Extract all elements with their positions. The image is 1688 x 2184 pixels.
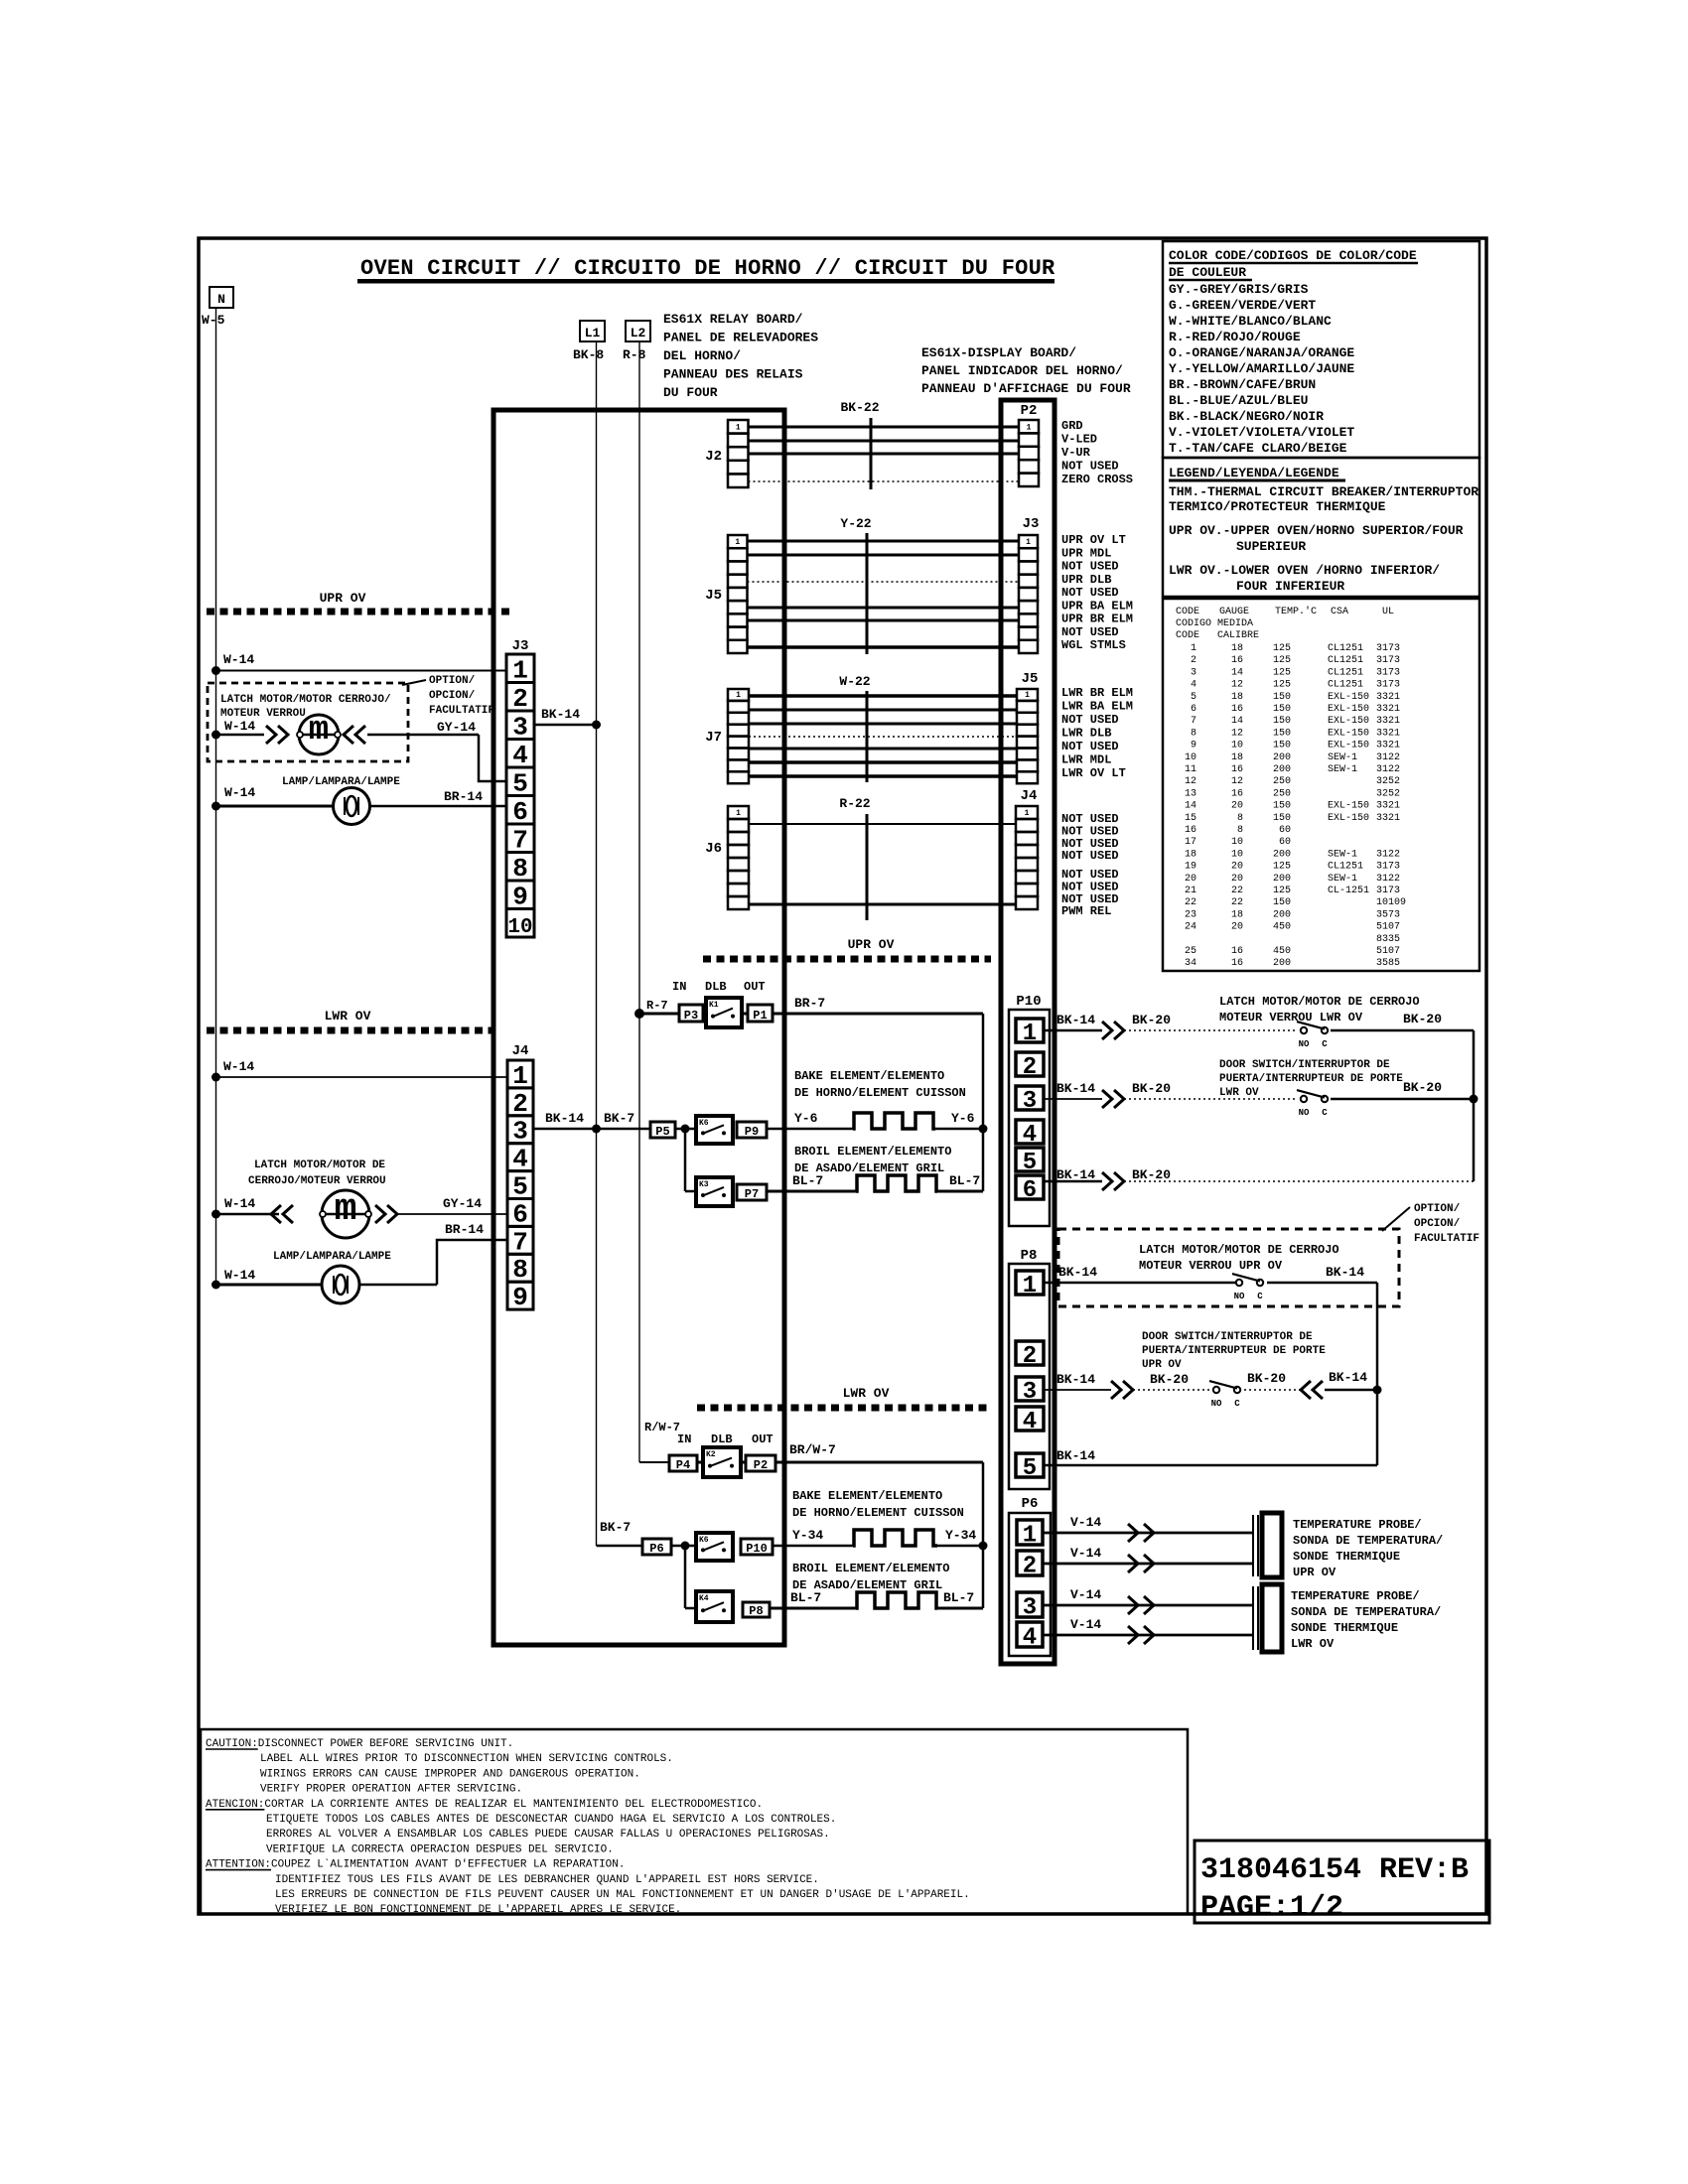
svg-text:UPR BA ELM: UPR BA ELM — [1061, 599, 1133, 613]
svg-text:12: 12 — [1231, 776, 1243, 787]
svg-text:UPR BR ELM: UPR BR ELM — [1061, 613, 1133, 626]
svg-text:P5: P5 — [655, 1125, 669, 1139]
svg-text:250: 250 — [1273, 776, 1291, 787]
svg-text:1: 1 — [1026, 538, 1031, 547]
svg-text:10: 10 — [1185, 752, 1196, 763]
svg-text:V-UR: V-UR — [1061, 446, 1091, 460]
svg-text:NO: NO — [1211, 1399, 1222, 1409]
svg-text:BK-14: BK-14 — [541, 707, 580, 722]
svg-text:ATTENTION:COUPEZ L`ALIMENTATIO: ATTENTION:COUPEZ L`ALIMENTATION AVANT D'… — [206, 1858, 625, 1871]
svg-text:P7: P7 — [745, 1187, 759, 1201]
svg-text:Y-34: Y-34 — [945, 1528, 976, 1543]
svg-text:ERRORES AL VOLVER A ENSAMBLAR: ERRORES AL VOLVER A ENSAMBLAR LOS CABLES… — [266, 1829, 830, 1841]
svg-text:GY.-GREY/GRIS/GRIS: GY.-GREY/GRIS/GRIS — [1169, 282, 1309, 297]
svg-text:UPR MDL: UPR MDL — [1061, 546, 1111, 560]
svg-text:21: 21 — [1185, 886, 1196, 896]
svg-text:CSA: CSA — [1331, 607, 1348, 617]
svg-text:UL: UL — [1382, 607, 1394, 617]
svg-text:FACULTATIF: FACULTATIF — [1414, 1233, 1479, 1245]
svg-text:BK.-BLACK/NEGRO/NOIR: BK.-BLACK/NEGRO/NOIR — [1169, 409, 1324, 424]
svg-text:3585: 3585 — [1376, 958, 1400, 969]
svg-text:BL.-BLUE/AZUL/BLEU: BL.-BLUE/AZUL/BLEU — [1169, 393, 1308, 408]
svg-text:BK-20: BK-20 — [1132, 1081, 1171, 1096]
svg-text:IN: IN — [672, 980, 686, 994]
svg-text:OUT: OUT — [744, 980, 766, 994]
svg-text:200: 200 — [1273, 958, 1291, 969]
svg-text:DE HORNO/ELEMENT CUISSON: DE HORNO/ELEMENT CUISSON — [794, 1086, 966, 1100]
svg-text:11: 11 — [1185, 764, 1196, 775]
svg-text:LWR BA ELM: LWR BA ELM — [1061, 700, 1133, 714]
svg-text:LABEL ALL WIRES PRIOR TO DISCO: LABEL ALL WIRES PRIOR TO DISCONNECTION W… — [260, 1753, 673, 1765]
svg-text:SUPERIEUR: SUPERIEUR — [1236, 539, 1306, 554]
svg-text:LAMP/LAMPARA/LAMPE: LAMP/LAMPARA/LAMPE — [282, 776, 400, 788]
svg-text:3321: 3321 — [1376, 813, 1400, 824]
svg-text:UPR OV: UPR OV — [1293, 1566, 1336, 1579]
svg-text:4: 4 — [1023, 1625, 1037, 1652]
svg-text:ES61X RELAY BOARD/: ES61X RELAY BOARD/ — [663, 312, 803, 327]
svg-text:V-14: V-14 — [1070, 1546, 1101, 1561]
svg-text:18: 18 — [1231, 752, 1243, 763]
svg-text:C: C — [1234, 1399, 1240, 1409]
svg-text:TERMICO/PROTECTEUR THERMIQUE: TERMICO/PROTECTEUR THERMIQUE — [1169, 499, 1386, 514]
svg-text:EXL-150: EXL-150 — [1328, 728, 1369, 739]
svg-text:EXL-150: EXL-150 — [1328, 741, 1369, 751]
svg-text:BR.-BROWN/CAFE/BRUN: BR.-BROWN/CAFE/BRUN — [1169, 377, 1316, 392]
svg-text:3122: 3122 — [1376, 874, 1400, 885]
svg-text:CODIGO MEDIDA: CODIGO MEDIDA — [1176, 618, 1253, 629]
svg-text:14: 14 — [1231, 667, 1243, 678]
svg-text:SEW-1: SEW-1 — [1328, 752, 1357, 763]
svg-text:P4: P4 — [676, 1458, 690, 1472]
svg-text:125: 125 — [1273, 886, 1291, 896]
svg-text:BK-20: BK-20 — [1150, 1372, 1189, 1387]
svg-text:CL1251: CL1251 — [1328, 680, 1363, 691]
svg-text:P3: P3 — [684, 1009, 698, 1023]
svg-text:BK-14: BK-14 — [1056, 1081, 1095, 1096]
svg-text:BROIL ELEMENT/ELEMENTO: BROIL ELEMENT/ELEMENTO — [794, 1145, 951, 1159]
svg-text:m: m — [309, 712, 329, 750]
svg-text:18: 18 — [1231, 643, 1243, 654]
svg-text:200: 200 — [1273, 849, 1291, 860]
svg-text:16: 16 — [1231, 946, 1243, 957]
svg-text:BK-14: BK-14 — [1326, 1265, 1364, 1280]
svg-text:LWR OV: LWR OV — [1291, 1637, 1335, 1651]
svg-text:NOT USED: NOT USED — [1061, 560, 1119, 574]
svg-text:IN: IN — [677, 1433, 691, 1446]
svg-text:ATENCION:CORTAR LA CORRIENTE A: ATENCION:CORTAR LA CORRIENTE ANTES DE RE… — [206, 1799, 763, 1811]
svg-text:BL-7: BL-7 — [792, 1173, 823, 1188]
svg-text:PANNEAU DES RELAIS: PANNEAU DES RELAIS — [663, 367, 803, 382]
svg-text:P6: P6 — [1022, 1496, 1039, 1512]
svg-text:150: 150 — [1273, 728, 1291, 739]
svg-text:TEMPERATURE PROBE/: TEMPERATURE PROBE/ — [1291, 1589, 1420, 1603]
svg-text:3321: 3321 — [1376, 716, 1400, 727]
svg-text:J3: J3 — [512, 638, 529, 654]
svg-text:BR-14: BR-14 — [444, 789, 483, 804]
svg-text:PAGE:1/2: PAGE:1/2 — [1200, 1891, 1343, 1925]
svg-text:25: 25 — [1185, 946, 1196, 957]
svg-text:BAKE ELEMENT/ELEMENTO: BAKE ELEMENT/ELEMENTO — [792, 1489, 942, 1503]
svg-text:CODE: CODE — [1176, 607, 1199, 617]
svg-text:BK-20: BK-20 — [1247, 1371, 1286, 1386]
svg-text:13: 13 — [1185, 788, 1196, 799]
svg-text:EXL-150: EXL-150 — [1328, 692, 1369, 703]
svg-text:OPTION/: OPTION/ — [429, 675, 476, 687]
svg-text:P8: P8 — [1021, 1248, 1038, 1264]
svg-text:318046154 REV:B: 318046154 REV:B — [1200, 1853, 1469, 1887]
svg-text:125: 125 — [1273, 667, 1291, 678]
svg-text:BK-22: BK-22 — [840, 400, 879, 415]
svg-text:J7: J7 — [705, 730, 722, 746]
svg-text:60: 60 — [1279, 825, 1291, 836]
svg-text:3573: 3573 — [1376, 909, 1400, 920]
svg-text:BK-14: BK-14 — [1056, 1448, 1095, 1463]
svg-text:NOT USED: NOT USED — [1061, 586, 1119, 600]
svg-text:Y.-YELLOW/AMARILLO/JAUNE: Y.-YELLOW/AMARILLO/JAUNE — [1169, 361, 1354, 376]
svg-text:P2: P2 — [754, 1458, 768, 1472]
svg-text:450: 450 — [1273, 922, 1291, 933]
svg-text:20: 20 — [1231, 874, 1243, 885]
svg-text:5: 5 — [1023, 1150, 1037, 1176]
svg-text:125: 125 — [1273, 862, 1291, 873]
svg-text:W-14: W-14 — [223, 652, 254, 667]
svg-text:125: 125 — [1273, 643, 1291, 654]
svg-text:14: 14 — [1185, 801, 1196, 812]
svg-text:LWR OV LT: LWR OV LT — [1061, 766, 1126, 780]
svg-text:150: 150 — [1273, 801, 1291, 812]
svg-text:WIRINGS ERRORS CAN CAUSE IMPRO: WIRINGS ERRORS CAN CAUSE IMPROPER AND DA… — [260, 1768, 640, 1780]
svg-text:2: 2 — [1023, 1343, 1037, 1370]
svg-text:10: 10 — [508, 916, 533, 939]
svg-text:10: 10 — [1231, 849, 1243, 860]
svg-text:OPCION/: OPCION/ — [1414, 1218, 1461, 1230]
svg-text:3: 3 — [1023, 1379, 1037, 1406]
svg-text:FACULTATIF: FACULTATIF — [429, 705, 494, 717]
svg-text:3: 3 — [1023, 1088, 1037, 1115]
svg-text:GAUGE: GAUGE — [1219, 607, 1249, 617]
svg-text:DLB: DLB — [705, 980, 727, 994]
svg-text:1: 1 — [1027, 423, 1032, 432]
svg-text:BR-7: BR-7 — [794, 996, 825, 1011]
svg-text:34: 34 — [1185, 958, 1196, 969]
svg-text:THM.-THERMAL CIRCUIT BREAKER/I: THM.-THERMAL CIRCUIT BREAKER/INTERRUPTOR — [1169, 484, 1478, 499]
svg-text:L1: L1 — [585, 326, 601, 341]
svg-text:LATCH MOTOR/MOTOR DE: LATCH MOTOR/MOTOR DE — [254, 1160, 385, 1171]
svg-text:R.-RED/ROJO/ROUGE: R.-RED/ROJO/ROUGE — [1169, 330, 1301, 344]
svg-text:EXL-150: EXL-150 — [1328, 704, 1369, 715]
svg-text:16: 16 — [1185, 825, 1196, 836]
svg-text:1: 1 — [1023, 1273, 1037, 1299]
svg-text:4: 4 — [1023, 1122, 1037, 1149]
svg-text:5: 5 — [1191, 692, 1196, 703]
svg-text:450: 450 — [1273, 946, 1291, 957]
svg-text:PANNEAU D'AFFICHAGE DU FOUR: PANNEAU D'AFFICHAGE DU FOUR — [921, 381, 1131, 396]
svg-text:CL-1251: CL-1251 — [1328, 886, 1369, 896]
svg-text:SEW-1: SEW-1 — [1328, 849, 1357, 860]
svg-text:1: 1 — [1025, 691, 1030, 700]
svg-text:P10: P10 — [1016, 994, 1041, 1010]
svg-text:150: 150 — [1273, 716, 1291, 727]
svg-text:UPR OV.-UPPER OVEN/HORNO SUPER: UPR OV.-UPPER OVEN/HORNO SUPERIOR/FOUR — [1169, 523, 1464, 538]
svg-text:J4: J4 — [1021, 788, 1038, 804]
svg-text:J4: J4 — [512, 1043, 529, 1059]
svg-text:EXL-150: EXL-150 — [1328, 801, 1369, 812]
svg-text:BL-7: BL-7 — [790, 1590, 821, 1605]
svg-text:22: 22 — [1185, 897, 1196, 908]
svg-text:16: 16 — [1231, 655, 1243, 666]
svg-text:3321: 3321 — [1376, 728, 1400, 739]
svg-text:MOTEUR VERROU LWR OV: MOTEUR VERROU LWR OV — [1219, 1011, 1363, 1024]
svg-text:NO: NO — [1299, 1039, 1310, 1049]
svg-text:GY-14: GY-14 — [443, 1196, 482, 1211]
svg-text:VERIFY PROPER OPERATION AFTER: VERIFY PROPER OPERATION AFTER SERVICING. — [260, 1784, 522, 1796]
svg-text:2: 2 — [1191, 655, 1196, 666]
svg-text:16: 16 — [1231, 788, 1243, 799]
svg-text:3: 3 — [1023, 1595, 1037, 1622]
svg-text:17: 17 — [1185, 837, 1196, 848]
svg-text:4: 4 — [1191, 680, 1196, 691]
svg-text:BROIL ELEMENT/ELEMENTO: BROIL ELEMENT/ELEMENTO — [792, 1562, 949, 1575]
svg-text:NOT USED: NOT USED — [1061, 625, 1119, 639]
svg-text:150: 150 — [1273, 692, 1291, 703]
svg-text:GRD: GRD — [1061, 419, 1083, 433]
svg-text:LWR DLB: LWR DLB — [1061, 727, 1111, 741]
svg-text:DE HORNO/ELEMENT CUISSON: DE HORNO/ELEMENT CUISSON — [792, 1506, 964, 1520]
svg-text:3252: 3252 — [1376, 776, 1400, 787]
svg-text:K4: K4 — [699, 1594, 709, 1603]
svg-text:20: 20 — [1231, 862, 1243, 873]
svg-text:SONDA DE TEMPERATURA/: SONDA DE TEMPERATURA/ — [1291, 1605, 1441, 1619]
svg-text:W-14: W-14 — [224, 1268, 255, 1283]
svg-text:20: 20 — [1185, 874, 1196, 885]
svg-text:CL1251: CL1251 — [1328, 862, 1363, 873]
svg-text:R-8: R-8 — [623, 347, 646, 362]
svg-text:IDENTIFIEZ TOUS LES FILS AVANT: IDENTIFIEZ TOUS LES FILS AVANT DE LES DE… — [275, 1874, 819, 1886]
svg-text:NOT USED: NOT USED — [1061, 460, 1119, 474]
svg-text:LWR OV: LWR OV — [1219, 1087, 1259, 1099]
svg-text:SONDE THERMIQUE: SONDE THERMIQUE — [1291, 1621, 1398, 1635]
svg-text:LWR BR ELM: LWR BR ELM — [1061, 686, 1133, 700]
svg-text:UPR OV: UPR OV — [320, 591, 366, 606]
svg-text:BK-14: BK-14 — [1329, 1370, 1367, 1385]
svg-text:m: m — [335, 1188, 357, 1231]
svg-text:10109: 10109 — [1376, 897, 1406, 908]
svg-text:6: 6 — [1191, 704, 1196, 715]
svg-text:5107: 5107 — [1376, 946, 1400, 957]
svg-text:VERIFIQUE LA CORRECTA OPERACIO: VERIFIQUE LA CORRECTA OPERACION DESPUES … — [266, 1843, 614, 1855]
svg-text:14: 14 — [1231, 716, 1243, 727]
svg-text:20: 20 — [1231, 801, 1243, 812]
svg-text:150: 150 — [1273, 813, 1291, 824]
svg-text:250: 250 — [1273, 788, 1291, 799]
svg-text:8335: 8335 — [1376, 934, 1400, 945]
svg-text:BK-14: BK-14 — [1056, 1372, 1095, 1387]
svg-text:BK-20: BK-20 — [1132, 1013, 1171, 1027]
svg-text:PWM REL: PWM REL — [1061, 904, 1111, 918]
svg-text:BK-7: BK-7 — [604, 1111, 634, 1126]
svg-text:R-7: R-7 — [646, 999, 668, 1013]
svg-text:DLB: DLB — [711, 1433, 733, 1446]
svg-text:DU FOUR: DU FOUR — [663, 385, 718, 400]
svg-text:12: 12 — [1231, 728, 1243, 739]
svg-text:BAKE ELEMENT/ELEMENTO: BAKE ELEMENT/ELEMENTO — [794, 1069, 944, 1083]
svg-text:3321: 3321 — [1376, 704, 1400, 715]
svg-text:Y-22: Y-22 — [840, 516, 871, 531]
svg-text:W-14: W-14 — [223, 1059, 254, 1074]
svg-text:TEMP.'C: TEMP.'C — [1275, 606, 1317, 617]
svg-text:K6: K6 — [699, 1536, 709, 1545]
svg-text:3173: 3173 — [1376, 680, 1400, 691]
svg-text:LATCH MOTOR/MOTOR DE CERROJO: LATCH MOTOR/MOTOR DE CERROJO — [1139, 1243, 1339, 1257]
svg-text:Y-6: Y-6 — [951, 1111, 975, 1126]
svg-text:DEL HORNO/: DEL HORNO/ — [663, 348, 741, 363]
svg-text:NOT USED: NOT USED — [1061, 740, 1119, 753]
svg-text:PUERTA/INTERRUPTEUR DE PORTE: PUERTA/INTERRUPTEUR DE PORTE — [1142, 1345, 1326, 1357]
svg-text:3321: 3321 — [1376, 801, 1400, 812]
svg-text:8: 8 — [1237, 813, 1243, 824]
svg-text:W-14: W-14 — [224, 719, 255, 734]
svg-text:3173: 3173 — [1376, 862, 1400, 873]
svg-text:1: 1 — [1023, 1523, 1037, 1550]
svg-text:BK-20: BK-20 — [1403, 1080, 1442, 1095]
svg-text:NO: NO — [1234, 1292, 1245, 1301]
svg-text:K3: K3 — [699, 1180, 709, 1189]
svg-text:3321: 3321 — [1376, 692, 1400, 703]
svg-text:SONDE THERMIQUE: SONDE THERMIQUE — [1293, 1550, 1400, 1564]
svg-text:22: 22 — [1231, 897, 1243, 908]
svg-text:OUT: OUT — [752, 1433, 774, 1446]
svg-text:DE COULEUR: DE COULEUR — [1169, 265, 1246, 280]
svg-text:5107: 5107 — [1376, 922, 1400, 933]
svg-text:SEW-1: SEW-1 — [1328, 764, 1357, 775]
svg-text:C: C — [1322, 1039, 1328, 1049]
svg-text:OVEN CIRCUIT // CIRCUITO DE HO: OVEN CIRCUIT // CIRCUITO DE HORNO // CIR… — [360, 256, 1055, 281]
svg-text:V-LED: V-LED — [1061, 433, 1097, 447]
svg-text:COLOR CODE/CODIGOS DE COLOR/CO: COLOR CODE/CODIGOS DE COLOR/CODE — [1169, 248, 1417, 263]
svg-text:LWR OV: LWR OV — [843, 1386, 890, 1401]
svg-text:BR/W-7: BR/W-7 — [789, 1442, 836, 1457]
svg-text:18: 18 — [1231, 692, 1243, 703]
svg-text:7: 7 — [1191, 716, 1196, 727]
svg-text:P1: P1 — [753, 1009, 767, 1023]
svg-text:PANEL DE RELEVADORES: PANEL DE RELEVADORES — [663, 331, 818, 345]
svg-text:BK-7: BK-7 — [600, 1520, 631, 1535]
svg-text:3122: 3122 — [1376, 752, 1400, 763]
svg-text:200: 200 — [1273, 764, 1291, 775]
svg-text:10: 10 — [1231, 741, 1243, 751]
svg-text:24: 24 — [1185, 922, 1196, 933]
svg-text:J6: J6 — [705, 841, 722, 857]
svg-text:LES ERREURS DE CONNECTION DE F: LES ERREURS DE CONNECTION DE FILS PEUVEN… — [275, 1889, 970, 1901]
svg-text:BK-20: BK-20 — [1132, 1167, 1171, 1182]
svg-text:Y-6: Y-6 — [794, 1111, 818, 1126]
svg-text:4: 4 — [1023, 1409, 1037, 1435]
svg-text:CL1251: CL1251 — [1328, 655, 1363, 666]
svg-text:NO: NO — [1299, 1108, 1310, 1118]
svg-text:16: 16 — [1231, 764, 1243, 775]
svg-text:150: 150 — [1273, 741, 1291, 751]
svg-text:SONDA DE TEMPERATURA/: SONDA DE TEMPERATURA/ — [1293, 1534, 1443, 1548]
svg-text:3173: 3173 — [1376, 643, 1400, 654]
svg-text:1: 1 — [735, 538, 740, 547]
svg-text:K1: K1 — [709, 1001, 719, 1010]
svg-text:60: 60 — [1279, 837, 1291, 848]
svg-text:125: 125 — [1273, 655, 1291, 666]
svg-text:3173: 3173 — [1376, 886, 1400, 896]
svg-text:18: 18 — [1185, 849, 1196, 860]
svg-text:LEGEND/LEYENDA/LEGENDE: LEGEND/LEYENDA/LEGENDE — [1169, 466, 1339, 480]
svg-text:V.-VIOLET/VIOLETA/VIOLET: V.-VIOLET/VIOLETA/VIOLET — [1169, 425, 1354, 440]
svg-text:16: 16 — [1231, 704, 1243, 715]
svg-text:BK-14: BK-14 — [545, 1111, 584, 1126]
svg-text:L2: L2 — [631, 326, 646, 341]
svg-text:W-22: W-22 — [839, 674, 870, 689]
svg-text:22: 22 — [1231, 886, 1243, 896]
svg-text:10: 10 — [1231, 837, 1243, 848]
svg-text:9: 9 — [1191, 741, 1196, 751]
svg-text:W-14: W-14 — [224, 1196, 255, 1211]
svg-text:DOOR SWITCH/INTERRUPTOR DE: DOOR SWITCH/INTERRUPTOR DE — [1219, 1059, 1390, 1071]
svg-text:125: 125 — [1273, 680, 1291, 691]
svg-text:N: N — [217, 292, 225, 307]
svg-text:LATCH MOTOR/MOTOR CERROJO/: LATCH MOTOR/MOTOR CERROJO/ — [220, 694, 391, 706]
svg-text:1: 1 — [736, 691, 741, 700]
svg-text:CL1251: CL1251 — [1328, 667, 1363, 678]
svg-text:2: 2 — [1023, 1054, 1037, 1081]
svg-text:UPR OV LT: UPR OV LT — [1061, 533, 1126, 547]
svg-text:J2: J2 — [705, 449, 722, 465]
svg-text:5: 5 — [1023, 1455, 1037, 1482]
svg-text:BK-14: BK-14 — [1056, 1013, 1095, 1027]
svg-text:19: 19 — [1185, 862, 1196, 873]
svg-text:P10: P10 — [746, 1542, 768, 1556]
svg-text:J5: J5 — [1022, 671, 1039, 687]
svg-text:BL-7: BL-7 — [943, 1590, 974, 1605]
svg-text:VERIFIEZ LE BON FONCTIONNEMENT: VERIFIEZ LE BON FONCTIONNEMENT DE L'APPA… — [275, 1904, 681, 1916]
svg-text:V-14: V-14 — [1070, 1617, 1101, 1632]
svg-text:3: 3 — [1191, 667, 1196, 678]
svg-text:SEW-1: SEW-1 — [1328, 874, 1357, 885]
svg-text:T.-TAN/CAFE CLARO/BEIGE: T.-TAN/CAFE CLARO/BEIGE — [1169, 441, 1347, 456]
svg-text:NOT USED: NOT USED — [1061, 713, 1119, 727]
svg-text:K6: K6 — [699, 1119, 709, 1128]
svg-text:K2: K2 — [706, 1450, 716, 1459]
svg-text:LAMP/LAMPARA/LAMPE: LAMP/LAMPARA/LAMPE — [273, 1251, 391, 1263]
svg-text:R/W-7: R/W-7 — [644, 1421, 680, 1434]
svg-text:GY-14: GY-14 — [437, 720, 476, 735]
svg-text:8: 8 — [1191, 728, 1196, 739]
svg-text:1: 1 — [736, 424, 741, 433]
svg-text:BK-8: BK-8 — [573, 347, 604, 362]
svg-text:DOOR SWITCH/INTERRUPTOR DE: DOOR SWITCH/INTERRUPTOR DE — [1142, 1331, 1313, 1343]
svg-text:6: 6 — [1023, 1177, 1037, 1204]
svg-text:J5: J5 — [705, 588, 722, 604]
svg-text:EXL-150: EXL-150 — [1328, 716, 1369, 727]
svg-text:BR-14: BR-14 — [445, 1222, 484, 1237]
svg-text:V-14: V-14 — [1070, 1515, 1101, 1530]
svg-text:20: 20 — [1231, 922, 1243, 933]
svg-text:BK-14: BK-14 — [1058, 1265, 1097, 1280]
svg-text:V-14: V-14 — [1070, 1587, 1101, 1602]
svg-text:BL-7: BL-7 — [949, 1173, 980, 1188]
svg-text:ETIQUETE TODOS LOS CABLES ANTE: ETIQUETE TODOS LOS CABLES ANTES DE DESCO… — [266, 1814, 836, 1826]
svg-text:O.-ORANGE/NARANJA/ORANGE: O.-ORANGE/NARANJA/ORANGE — [1169, 345, 1354, 360]
svg-text:200: 200 — [1273, 752, 1291, 763]
svg-text:2: 2 — [1023, 1554, 1037, 1580]
svg-text:ES61X-DISPLAY BOARD/: ES61X-DISPLAY BOARD/ — [921, 345, 1076, 360]
svg-text:12: 12 — [1185, 776, 1196, 787]
svg-text:3173: 3173 — [1376, 655, 1400, 666]
